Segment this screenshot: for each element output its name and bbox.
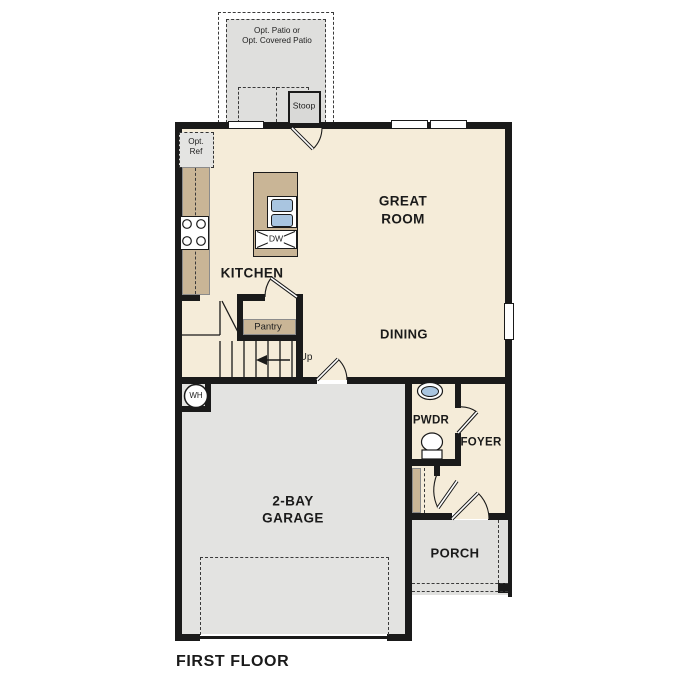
patio-label-line1: Opt. Patio or xyxy=(254,27,300,35)
garage-entry-door xyxy=(317,359,347,380)
closet-door xyxy=(434,474,457,508)
pantry-label: Pantry xyxy=(254,322,281,332)
opt-ref-label-line2: Ref xyxy=(190,148,203,156)
plan-detail-layer xyxy=(0,0,687,687)
garage-label-line1: 2-BAY xyxy=(272,494,313,508)
stoop-door xyxy=(292,128,322,149)
powder-door xyxy=(458,407,477,433)
garage-label-line2: GARAGE xyxy=(262,511,324,525)
water-heater-label: WH xyxy=(189,392,202,400)
foyer-label: FOYER xyxy=(460,437,501,449)
patio-label-line2: Opt. Covered Patio xyxy=(242,37,312,45)
front-door xyxy=(452,493,489,519)
dishwasher-label: DW xyxy=(268,235,284,244)
stair-treads xyxy=(182,301,292,377)
great-room-label-line1: GREAT xyxy=(379,194,427,208)
dining-label: DINING xyxy=(380,328,428,341)
opt-ref-label-line1: Opt. xyxy=(188,138,203,146)
up-label: Up xyxy=(300,353,313,363)
stair-up-arrow xyxy=(256,355,290,365)
kitchen-label: KITCHEN xyxy=(221,266,284,280)
toilet-icon xyxy=(422,433,443,459)
porch-label: PORCH xyxy=(431,547,480,560)
stove-burners xyxy=(183,220,206,246)
pantry-door xyxy=(265,278,297,297)
great-room-label-line2: ROOM xyxy=(381,212,425,226)
powder-sink-icon xyxy=(418,383,443,400)
pwdr-label: PWDR xyxy=(413,415,449,427)
plan-title: FIRST FLOOR xyxy=(176,654,289,670)
floor-plan: Opt. Patio or Opt. Covered Patio Stoop O… xyxy=(0,0,687,687)
stoop-label: Stoop xyxy=(293,102,315,111)
